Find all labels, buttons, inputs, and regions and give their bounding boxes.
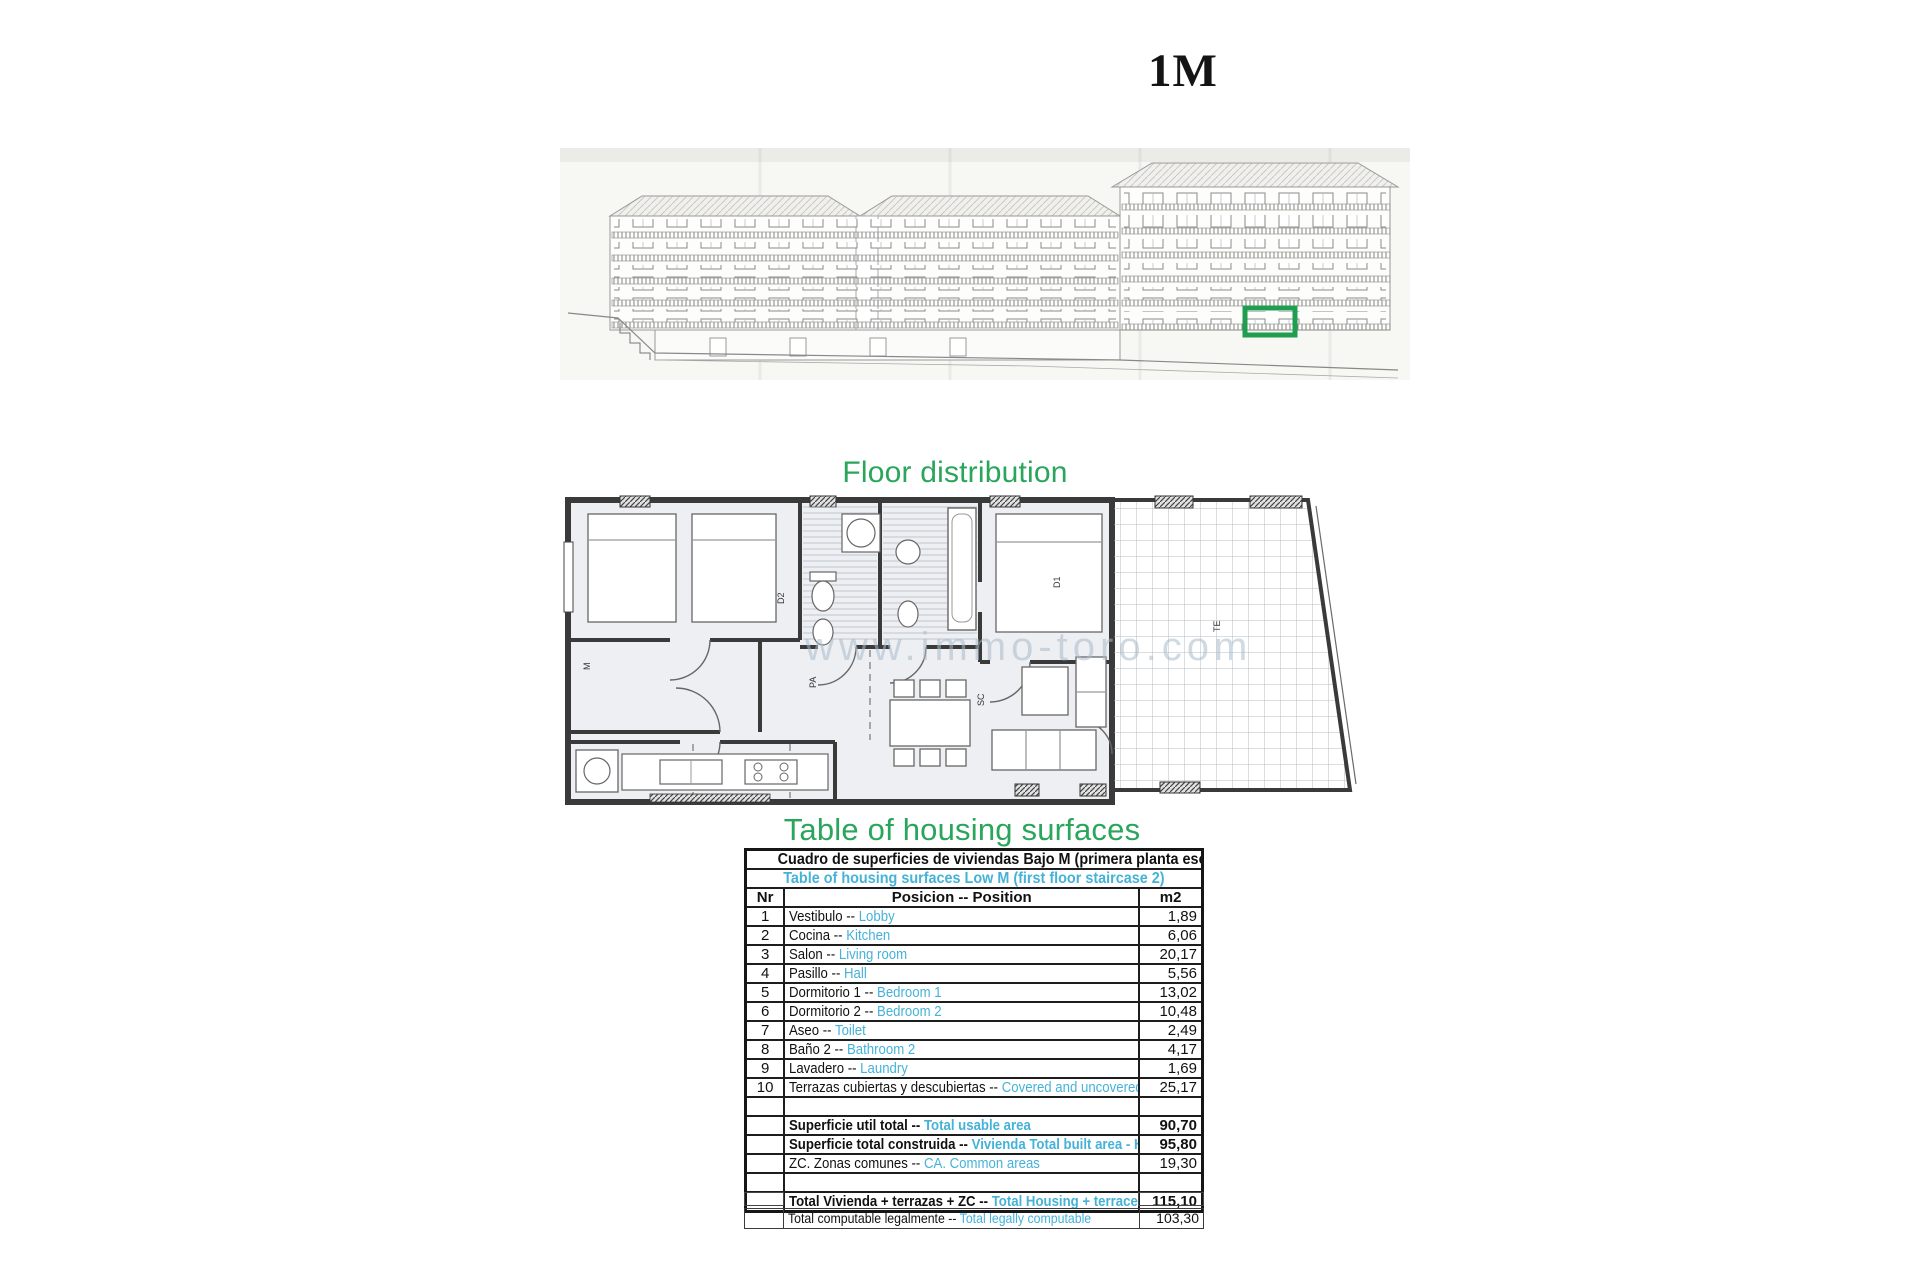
table-row: 3Salon -- Living room20,17 xyxy=(746,945,1203,964)
table-row xyxy=(746,1097,1203,1116)
housing-surfaces-table: Cuadro de superficies de viviendas Bajo … xyxy=(744,848,1204,1213)
footer-label-es: Total computable legalmente -- xyxy=(788,1210,956,1226)
table-row xyxy=(746,1173,1203,1192)
footer-label-en: Total legally computable xyxy=(960,1210,1091,1226)
left-building-block xyxy=(610,196,1120,360)
building-elevation-drawing xyxy=(560,148,1410,380)
chair-icon xyxy=(920,749,940,766)
right-building-block xyxy=(1112,163,1398,330)
coffee-table-icon xyxy=(1022,667,1068,715)
left-building-floors xyxy=(612,219,1118,328)
col-header-nr: Nr xyxy=(746,888,785,907)
bed-icon xyxy=(692,514,776,622)
table-title-en: Table of housing surfaces Low M (first f… xyxy=(783,870,1164,887)
legal-total-row: Total computable legalmente -- Total leg… xyxy=(744,1208,1204,1229)
room-label: M xyxy=(582,663,592,671)
chair-icon xyxy=(946,749,966,766)
toilet-icon xyxy=(898,601,918,627)
table-row: 10Terrazas cubiertas y descubiertas -- C… xyxy=(746,1078,1203,1097)
table-row: Total computable legalmente -- Total leg… xyxy=(745,1209,1204,1229)
sofa-icon xyxy=(992,730,1096,770)
table-row: Superficie util total -- Total usable ar… xyxy=(746,1116,1203,1135)
table-gap-row xyxy=(744,1192,1204,1205)
footer-value: 103,30 xyxy=(1140,1209,1204,1229)
dining-table-icon xyxy=(890,700,970,746)
table-row: 1Vestibulo -- Lobby1,89 xyxy=(746,907,1203,926)
table-row: 9Lavadero -- Laundry1,69 xyxy=(746,1059,1203,1078)
room-label: PA xyxy=(808,677,818,688)
table-of-surfaces-heading: Table of housing surfaces xyxy=(712,812,1212,848)
col-header-m2: m2 xyxy=(1139,888,1202,907)
page-title: 1M xyxy=(1148,44,1218,98)
col-header-position: Posicion -- Position xyxy=(784,888,1139,907)
watermark: www.immo-toro.com xyxy=(804,625,1252,669)
chair-icon xyxy=(920,680,940,697)
table-title-row-es: Cuadro de superficies de viviendas Bajo … xyxy=(746,850,1203,870)
table-row: 6Dormitorio 2 -- Bedroom 210,48 xyxy=(746,1002,1203,1021)
floor-plan-drawing: M D2 D1 PA SC TE www.immo-toro.com xyxy=(560,492,1390,812)
gap-stub-cell xyxy=(744,1192,784,1206)
stove-icon xyxy=(745,760,797,784)
table-row: ZC. Zonas comunes -- CA. Common areas19,… xyxy=(746,1154,1203,1173)
washbasin-icon xyxy=(847,519,875,547)
gap-stub-cell xyxy=(1138,1192,1204,1206)
room-label: D1 xyxy=(1052,576,1062,588)
table-title-es: Cuadro de superficies de viviendas Bajo … xyxy=(778,851,1203,868)
table-title-row-en: Table of housing surfaces Low M (first f… xyxy=(746,869,1203,888)
table-row: 2Cocina -- Kitchen6,06 xyxy=(746,926,1203,945)
table-row: 8Baño 2 -- Bathroom 24,17 xyxy=(746,1040,1203,1059)
table-column-header-row: Nr Posicion -- Position m2 xyxy=(746,888,1203,907)
room-label: SC xyxy=(976,693,986,706)
table-row: 5Dormitorio 1 -- Bedroom 113,02 xyxy=(746,983,1203,1002)
bed-icon xyxy=(996,514,1102,632)
chair-icon xyxy=(946,680,966,697)
table-row: 4Pasillo -- Hall5,56 xyxy=(746,964,1203,983)
table-row: Superficie total construida -- Vivienda … xyxy=(746,1135,1203,1154)
table-row: 7Aseo -- Toilet2,49 xyxy=(746,1021,1203,1040)
toilet-icon xyxy=(812,581,834,611)
room-label: D2 xyxy=(776,592,786,604)
chair-icon xyxy=(894,749,914,766)
bathrooms xyxy=(803,504,977,645)
washbasin-icon xyxy=(896,540,920,564)
floor-distribution-heading: Floor distribution xyxy=(755,456,1155,490)
bed-icon xyxy=(588,514,676,622)
chair-icon xyxy=(894,680,914,697)
